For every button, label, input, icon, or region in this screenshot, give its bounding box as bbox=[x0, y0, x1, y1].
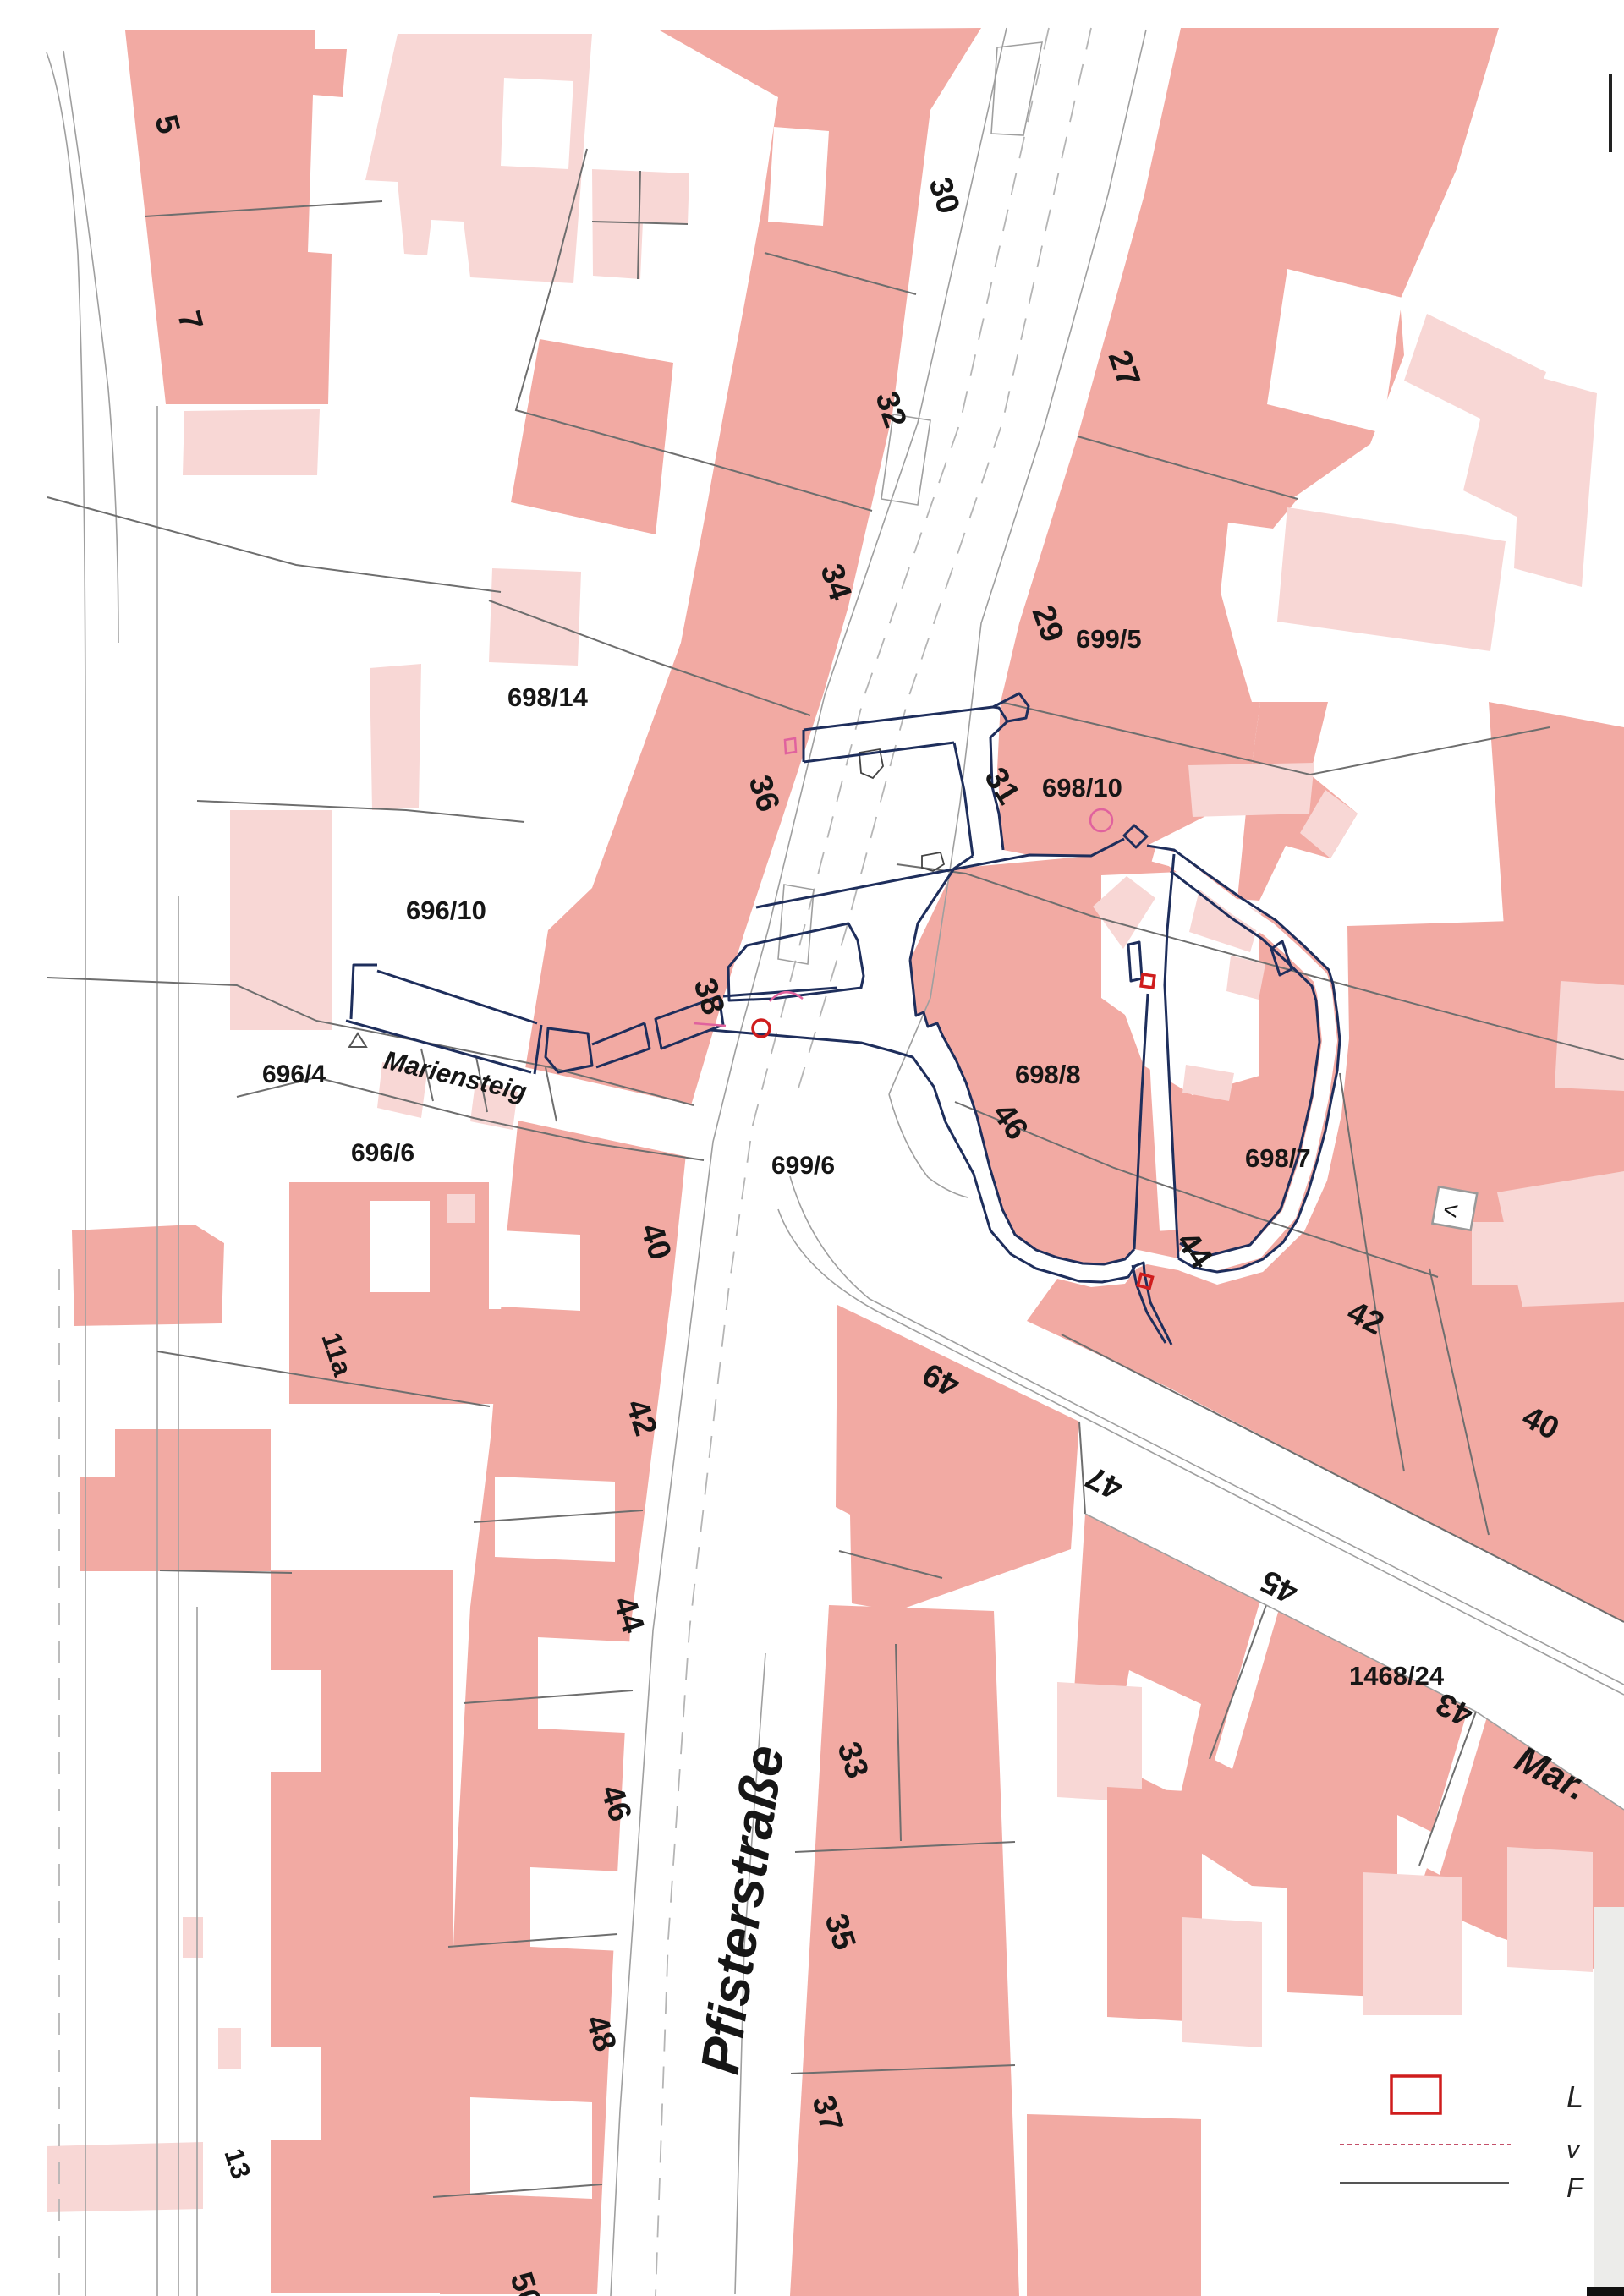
svg-text:699/5: 699/5 bbox=[1076, 624, 1142, 654]
svg-text:696/6: 696/6 bbox=[351, 1139, 414, 1167]
svg-text:698/14: 698/14 bbox=[507, 682, 589, 712]
svg-text:696/10: 696/10 bbox=[406, 896, 486, 925]
svg-text:696/4: 696/4 bbox=[262, 1060, 326, 1088]
svg-text:v: v bbox=[1566, 2136, 1581, 2164]
svg-text:698/7: 698/7 bbox=[1245, 1143, 1311, 1173]
svg-text:698/8: 698/8 bbox=[1015, 1060, 1081, 1089]
svg-text:F: F bbox=[1566, 2173, 1585, 2203]
svg-text:L: L bbox=[1566, 2080, 1583, 2114]
svg-text:1468/24: 1468/24 bbox=[1349, 1661, 1445, 1690]
svg-text:698/10: 698/10 bbox=[1042, 773, 1122, 803]
svg-text:699/6: 699/6 bbox=[771, 1152, 835, 1180]
